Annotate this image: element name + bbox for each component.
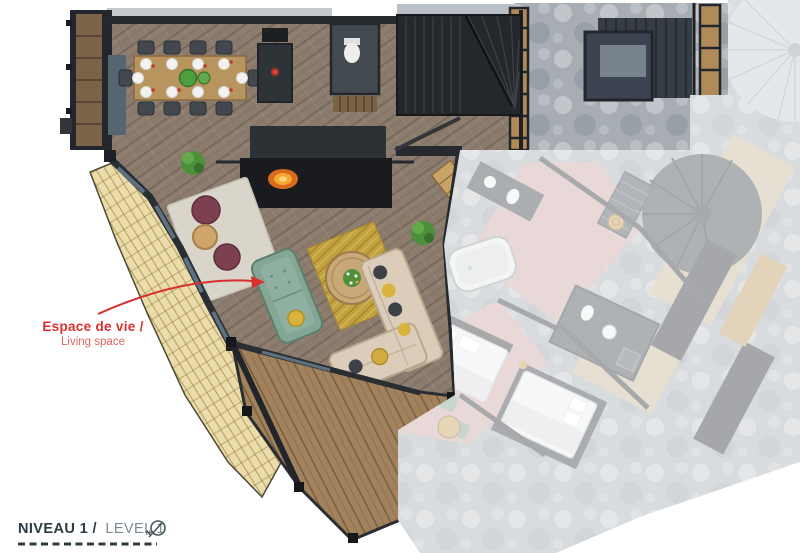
floor-plan-rendering: Espace de vie / Living space NIVEAU 1 / … <box>0 0 800 553</box>
table-plant <box>180 70 197 87</box>
pouf-burgundy-2 <box>214 244 240 270</box>
hood <box>262 28 288 42</box>
table-centerpiece <box>343 269 361 287</box>
balcony-strip <box>60 10 112 150</box>
annotation-title: Espace de vie / <box>42 319 143 334</box>
level-label-fr: NIVEAU 1 / <box>18 521 97 537</box>
wc-room <box>331 24 379 112</box>
pouf-burgundy <box>192 196 220 224</box>
table-plant-2 <box>198 72 210 84</box>
floor-plant <box>181 151 205 175</box>
ladder-2 <box>700 5 720 97</box>
annotation-subtitle: Living space <box>61 336 125 348</box>
side-table <box>193 225 217 249</box>
level-label: NIVEAU 1 / LEVEL 1 <box>18 520 165 537</box>
floor-plan-page: Espace de vie / Living space NIVEAU 1 / … <box>0 0 800 553</box>
sideboard <box>108 55 126 135</box>
level-legend: NIVEAU 1 / LEVEL 1 N <box>18 520 165 544</box>
floor-plant-2 <box>411 221 435 245</box>
stair-wall <box>396 146 462 156</box>
toilet <box>344 43 360 63</box>
kitchen-island <box>258 28 292 102</box>
